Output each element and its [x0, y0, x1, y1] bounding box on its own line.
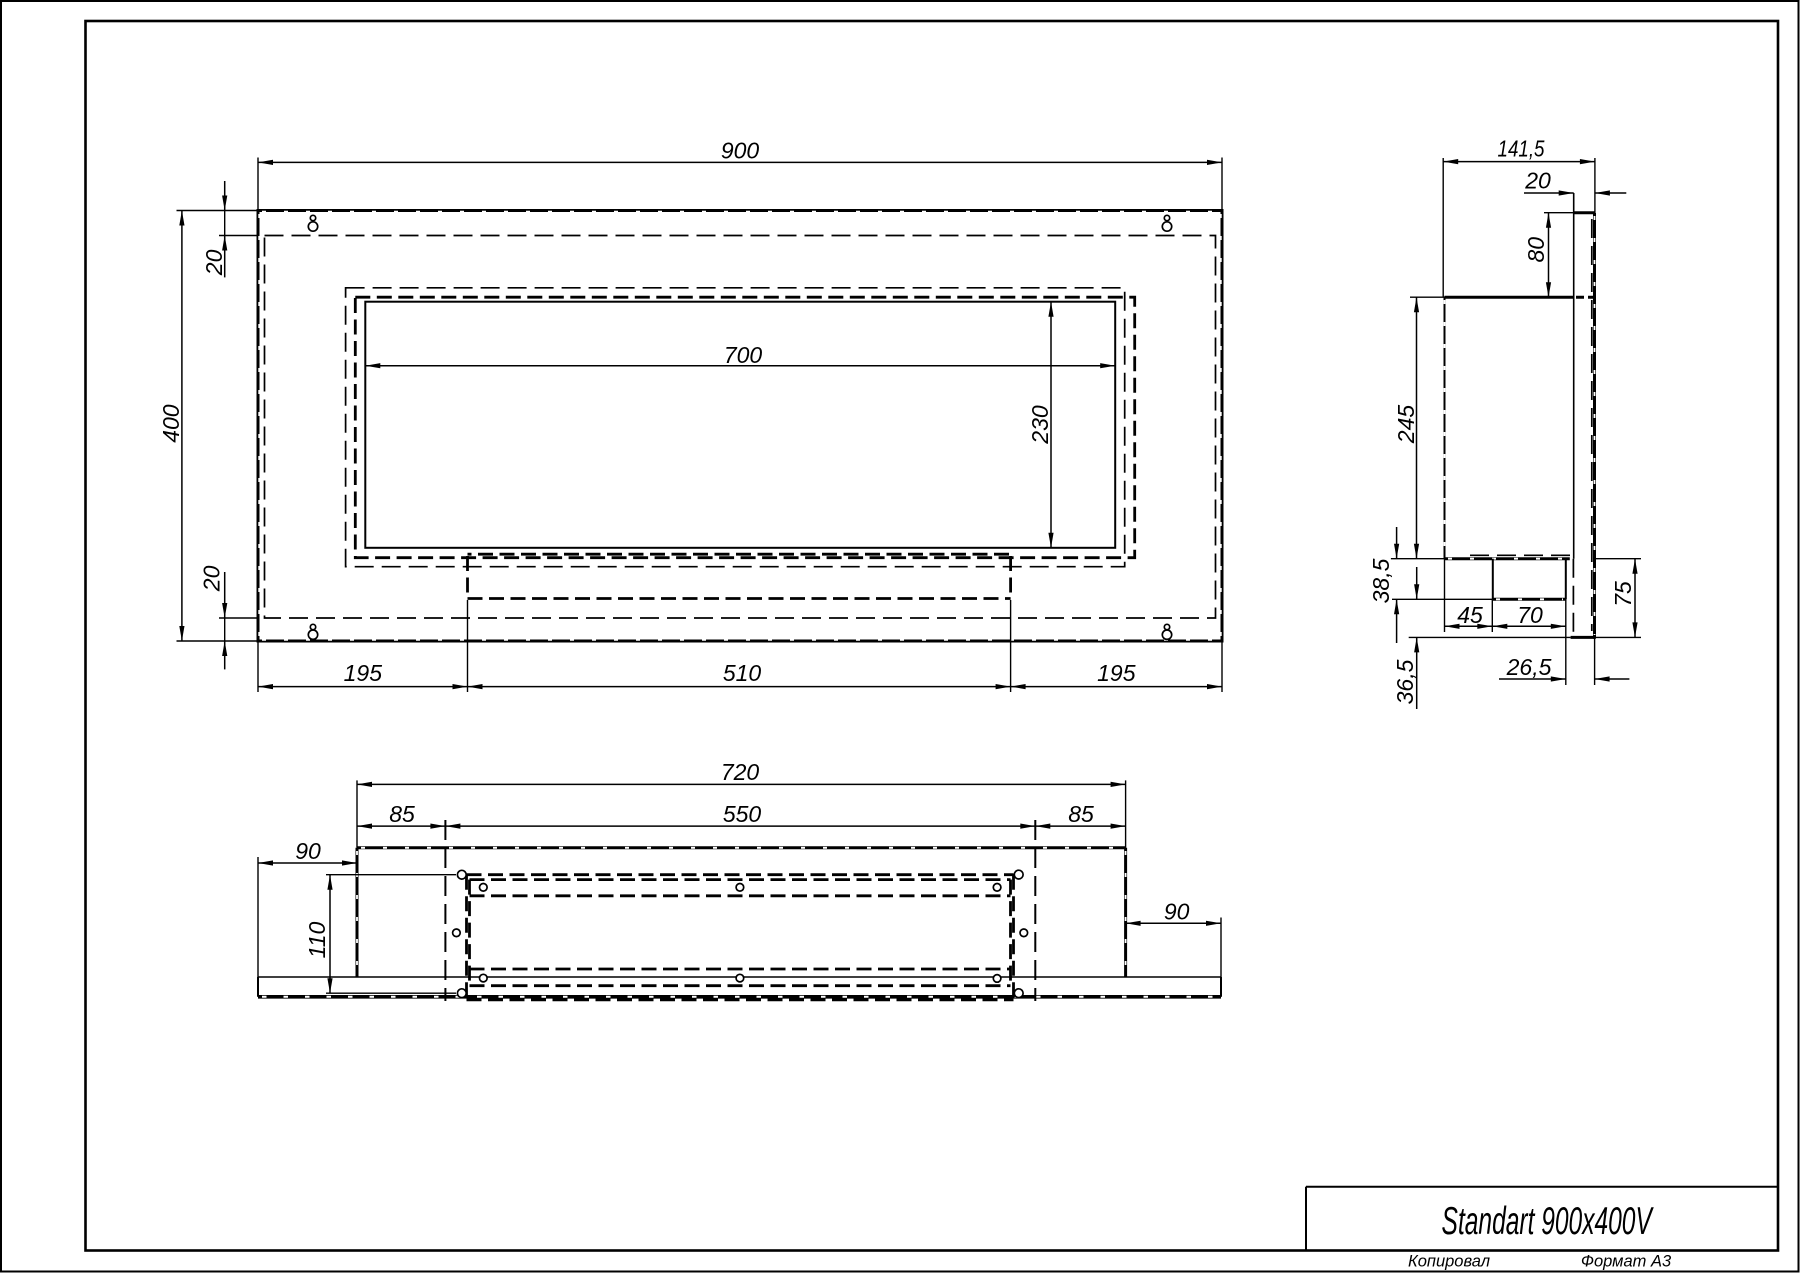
- svg-text:Standart 900x400V: Standart 900x400V: [1442, 1198, 1655, 1242]
- svg-text:90: 90: [1164, 899, 1190, 925]
- svg-text:900: 900: [721, 138, 760, 164]
- svg-text:38,5: 38,5: [1368, 558, 1394, 603]
- svg-text:70: 70: [1517, 602, 1543, 628]
- svg-text:510: 510: [723, 660, 762, 686]
- svg-text:85: 85: [389, 801, 415, 827]
- svg-text:45: 45: [1457, 602, 1483, 628]
- svg-text:110: 110: [304, 921, 330, 958]
- svg-text:550: 550: [723, 801, 762, 827]
- svg-text:80: 80: [1523, 237, 1549, 263]
- svg-text:195: 195: [1097, 660, 1136, 686]
- svg-text:141,5: 141,5: [1498, 136, 1545, 162]
- svg-text:20: 20: [199, 565, 225, 592]
- svg-text:195: 195: [344, 660, 383, 686]
- svg-text:75: 75: [1610, 581, 1636, 607]
- svg-text:230: 230: [1027, 405, 1053, 445]
- svg-text:700: 700: [724, 342, 763, 368]
- svg-text:90: 90: [295, 838, 321, 864]
- svg-text:720: 720: [721, 759, 760, 785]
- svg-text:20: 20: [1524, 168, 1551, 194]
- svg-text:400: 400: [158, 404, 184, 443]
- svg-text:20: 20: [201, 249, 227, 276]
- svg-text:26,5: 26,5: [1506, 654, 1552, 680]
- svg-text:Формат А3: Формат А3: [1581, 1253, 1672, 1271]
- svg-text:245: 245: [1393, 405, 1419, 445]
- svg-text:36,5: 36,5: [1392, 659, 1418, 704]
- svg-text:85: 85: [1068, 801, 1094, 827]
- svg-text:Копировал: Копировал: [1408, 1253, 1490, 1271]
